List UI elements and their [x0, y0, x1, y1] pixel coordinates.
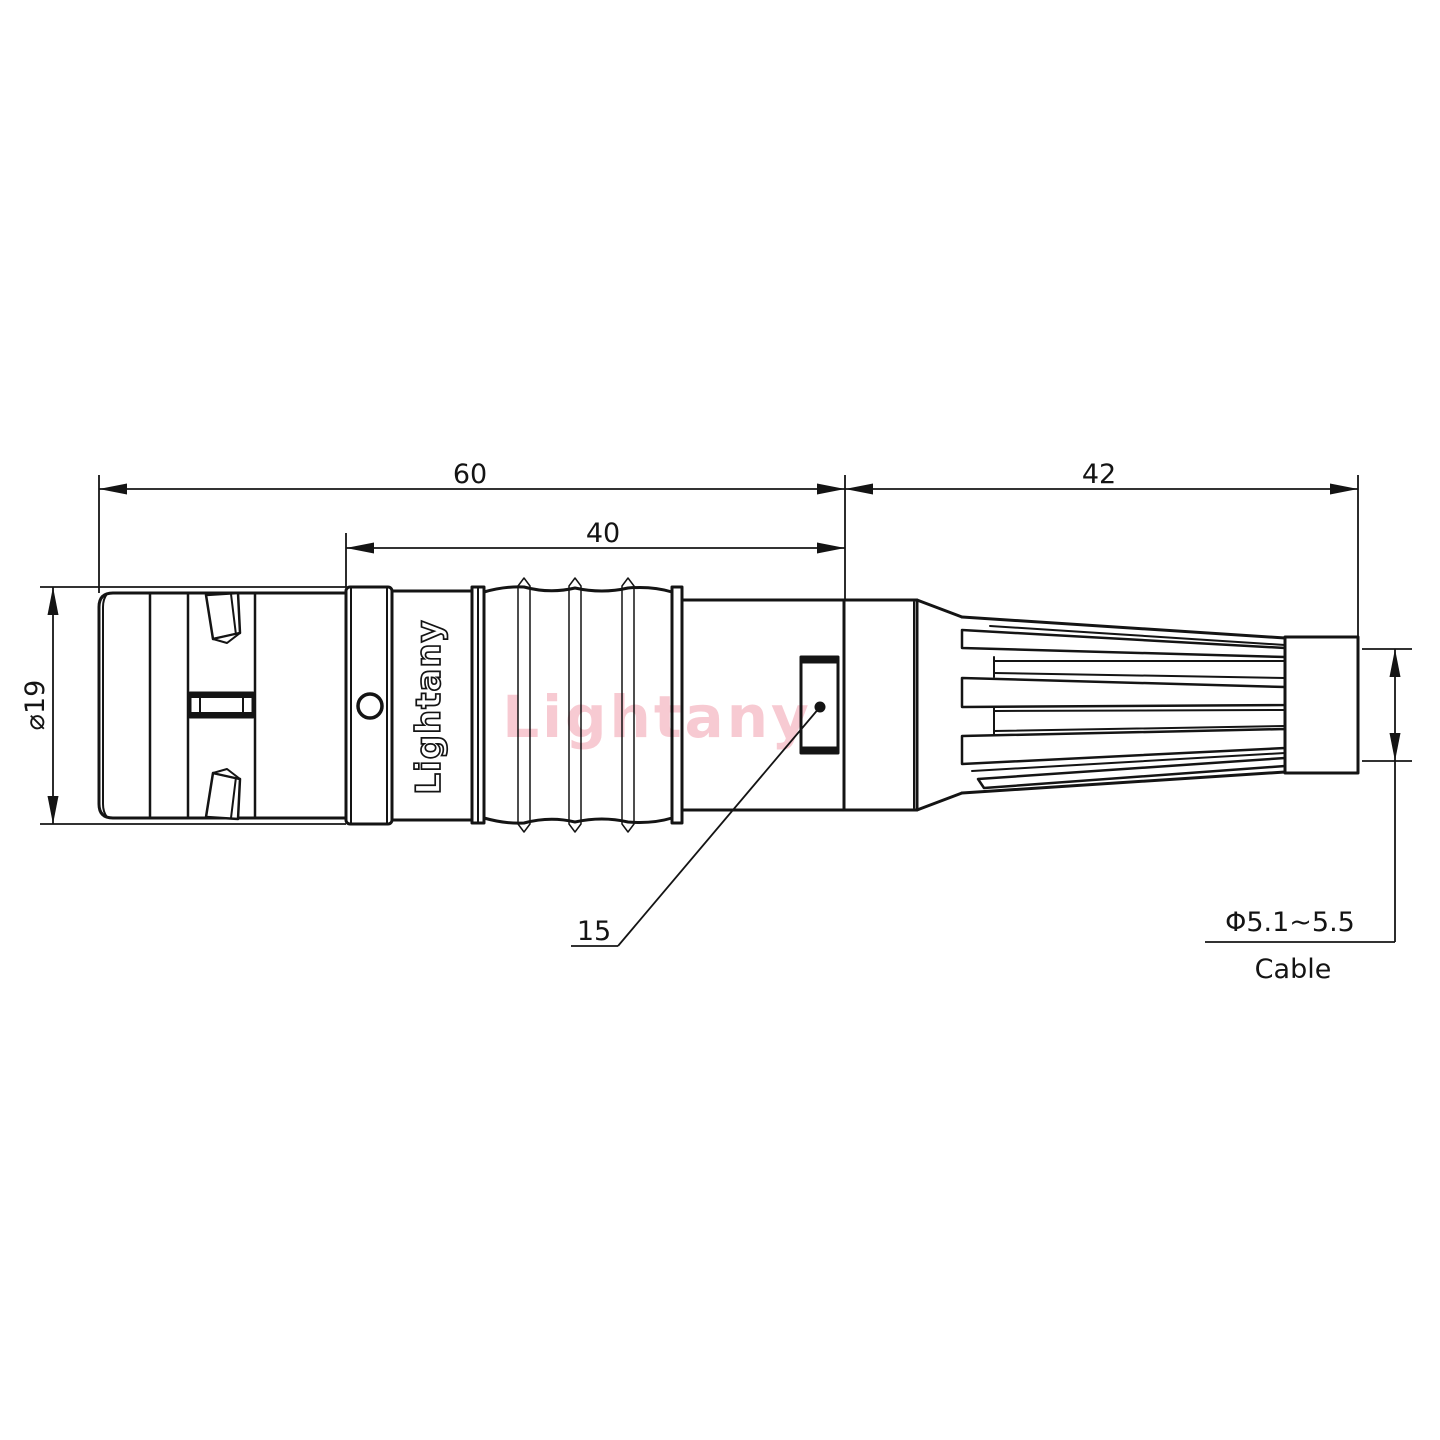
dimension-diameter-19: ⌀19: [20, 587, 59, 824]
boot-fins: [962, 630, 1285, 788]
leader-dot: [815, 702, 826, 713]
dim-label-cable-diameter: Φ5.1~5.5: [1225, 907, 1355, 938]
dim-label-40: 40: [586, 518, 620, 549]
dim-label-diameter-19: ⌀19: [20, 680, 51, 731]
boot-neck: [844, 600, 917, 810]
watermark-text: Lightany: [502, 683, 812, 751]
nut-slot-window: [190, 693, 253, 717]
barrel-brand-engraving: Lightany: [409, 619, 449, 794]
cable-word-label: Cable: [1255, 954, 1332, 985]
dimension-60: 60: [99, 459, 845, 495]
dim-label-42: 42: [1082, 459, 1116, 490]
dimension-42: 42: [845, 459, 1358, 495]
dim-label-60: 60: [453, 459, 487, 490]
cable-exit-tip: [1285, 637, 1358, 773]
strain-relief-boot: [844, 600, 1358, 810]
thin-ring: [472, 587, 484, 823]
dim-label-15: 15: [577, 916, 611, 947]
dimension-40: 40: [346, 518, 845, 554]
technical-drawing-page: 60 40 42 ⌀19 15 Φ5.1~5.5 Cable Lightany: [0, 0, 1440, 1440]
shoulder-ring: [346, 587, 392, 824]
connector-drawing-svg: 60 40 42 ⌀19 15 Φ5.1~5.5 Cable Lightany: [0, 0, 1440, 1440]
vent-hole: [358, 694, 382, 718]
